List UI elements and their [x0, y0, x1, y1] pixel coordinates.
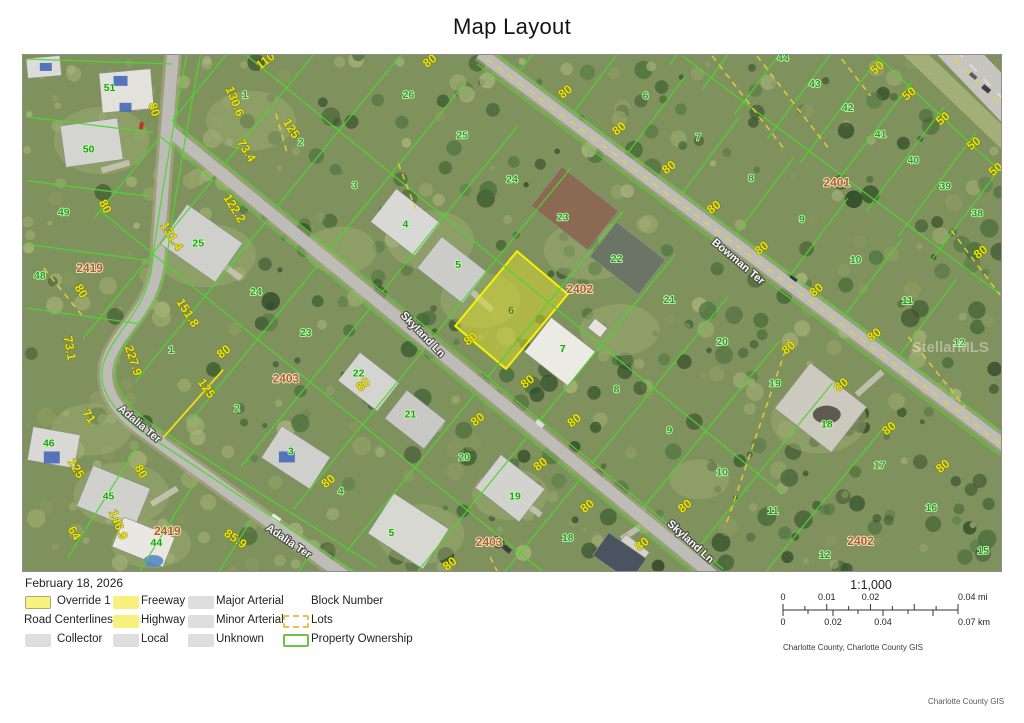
- legend-label: Road Centerlines: [24, 614, 113, 626]
- parcel-number: 7: [695, 133, 701, 144]
- parcel-number: 16: [926, 503, 938, 514]
- scale-ratio: 1:1,000: [783, 578, 959, 592]
- parcel-number: 6: [643, 91, 649, 102]
- legend-label: Freeway: [141, 595, 185, 607]
- parcel-number: 45: [103, 491, 115, 502]
- parcel-number: 19: [509, 491, 521, 502]
- legend-label: Block Number: [311, 595, 383, 607]
- legend-swatch-dashed-icon: [283, 615, 309, 628]
- parcel-number: 44: [151, 538, 163, 549]
- legend-label: Collector: [57, 633, 102, 645]
- parcel-number: 46: [43, 438, 55, 449]
- parcel-number: 41: [875, 130, 887, 141]
- parcel-number: 10: [716, 467, 728, 478]
- parcel-number: 8: [614, 385, 620, 396]
- legend-label: Minor Arterial: [216, 614, 284, 626]
- parcel-number: 17: [874, 460, 886, 471]
- parcel-number: 50: [83, 145, 95, 156]
- parcel-number: 4: [403, 219, 409, 230]
- parcel-number: 48: [34, 271, 46, 282]
- parcel-number: 49: [58, 207, 70, 218]
- legend-swatch-gray-icon: [188, 615, 214, 628]
- parcel-number: 25: [192, 238, 204, 249]
- parcel-number: 22: [611, 254, 623, 265]
- legend-swatch-yellow-icon: [113, 615, 139, 628]
- parcel-number: 1: [242, 90, 248, 101]
- parcel-number: 51: [104, 83, 116, 94]
- parcel-number: 24: [250, 287, 262, 298]
- svg-text:0.01: 0.01: [818, 592, 836, 602]
- parcel-number: 11: [902, 296, 913, 307]
- parcel-number: 9: [799, 214, 805, 225]
- block-number: 2403: [476, 535, 503, 549]
- parcel-number: 22: [353, 369, 365, 380]
- watermark: StellarMLS: [912, 339, 989, 356]
- parcel-number: 9: [666, 426, 672, 437]
- legend-label: Local: [141, 633, 169, 645]
- parcel-number: 23: [300, 328, 312, 339]
- parcel-number: 21: [405, 410, 417, 421]
- block-number: 2419: [154, 524, 181, 538]
- svg-text:0.04 mi: 0.04 mi: [958, 592, 988, 602]
- parcel-number: 3: [288, 446, 294, 457]
- aerial-map: 110808080805050505050130.673.4125122.213…: [23, 55, 1001, 571]
- parcel-number: 40: [908, 156, 920, 167]
- svg-text:0: 0: [780, 617, 785, 627]
- parcel-number: 12: [819, 550, 831, 561]
- parcel-number: 21: [664, 295, 676, 306]
- parcel-number: 39: [940, 181, 952, 192]
- svg-text:0.04: 0.04: [874, 617, 892, 627]
- parcel-number: 44: [777, 55, 789, 64]
- parcel-number: 1: [168, 345, 174, 356]
- page-title: Map Layout: [0, 14, 1024, 40]
- legend-label: Override 1: [57, 595, 111, 607]
- parcel-number: 38: [971, 208, 983, 219]
- svg-text:0.02: 0.02: [824, 617, 842, 627]
- parcel-number: 20: [716, 337, 728, 348]
- parcel-number: 2: [234, 404, 240, 415]
- parcel-number: 4: [338, 486, 344, 497]
- parcel-number: 43: [809, 79, 821, 90]
- parcel-number: 18: [821, 420, 833, 431]
- map-date: February 18, 2026: [25, 576, 123, 590]
- block-number: 2403: [273, 372, 300, 386]
- parcel-number: 19: [769, 379, 781, 390]
- scale-bar: 00.010.020.04 mi00.020.040.07 km: [775, 592, 1024, 632]
- legend-swatch-gray-icon: [25, 634, 51, 647]
- override-parcel-number: 6: [508, 305, 514, 317]
- legend-swatch-override-icon: [25, 596, 51, 609]
- parcel-number: 24: [506, 175, 518, 186]
- block-number: 2419: [76, 261, 103, 275]
- parcel-number: 3: [352, 180, 358, 191]
- legend-swatch-green-outline-icon: [283, 634, 309, 647]
- map-attribution: Charlotte County, Charlotte County GIS: [783, 643, 923, 652]
- legend-label: Property Ownership: [311, 633, 413, 645]
- parcel-number: 7: [560, 344, 566, 355]
- parcel-number: 8: [748, 174, 754, 185]
- legend-swatch-gray-icon: [188, 596, 214, 609]
- legend-swatch-yellow-icon: [113, 596, 139, 609]
- legend-label: Unknown: [216, 633, 264, 645]
- parcel-number: 18: [562, 533, 574, 544]
- svg-text:0.02: 0.02: [862, 592, 880, 602]
- parcel-number: 25: [456, 131, 468, 142]
- parcel-number: 2: [298, 138, 304, 149]
- legend-label: Lots: [311, 614, 333, 626]
- legend-label: Major Arterial: [216, 595, 284, 607]
- map-canvas: 110808080805050505050130.673.4125122.213…: [22, 54, 1002, 572]
- parcel-number: 5: [455, 260, 461, 271]
- block-number: 2401: [823, 175, 850, 189]
- block-number: 2402: [847, 534, 874, 548]
- parcel-number: 26: [403, 90, 415, 101]
- legend-label: Highway: [141, 614, 185, 626]
- parcel-number: 15: [977, 546, 989, 557]
- parcel-number: 10: [850, 255, 862, 266]
- parcel-number: 5: [389, 528, 395, 539]
- parcel-number: 11: [767, 506, 778, 517]
- legend-swatch-gray-icon: [113, 634, 139, 647]
- svg-text:0.07 km: 0.07 km: [958, 617, 990, 627]
- parcel-number: 23: [557, 212, 569, 223]
- parcel-number: 20: [458, 452, 470, 463]
- legend-swatch-gray-icon: [188, 634, 214, 647]
- svg-text:0: 0: [780, 592, 785, 602]
- footer-credit: Charlotte County GIS: [928, 697, 1004, 706]
- block-number: 2402: [566, 282, 593, 296]
- parcel-number: 42: [842, 103, 854, 114]
